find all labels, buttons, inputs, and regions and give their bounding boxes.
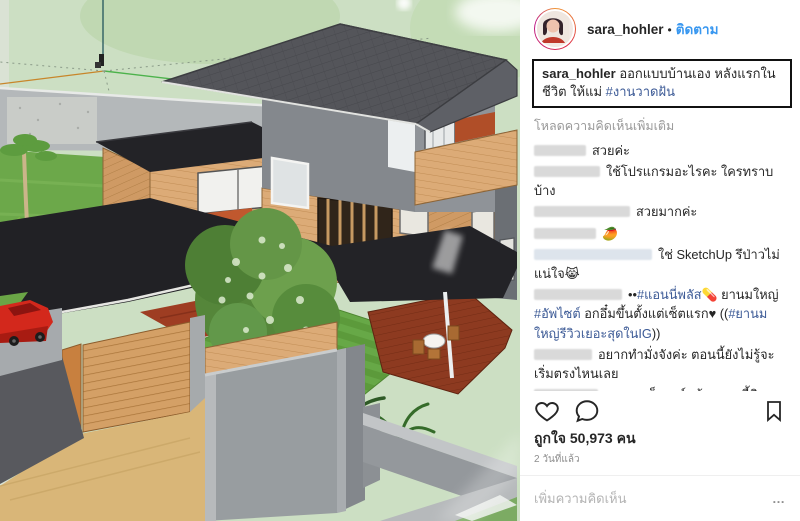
comment-row: สวยค่ะ [534,141,790,160]
comment-emoji: 💊 [702,287,718,302]
header-text: sara_hohler•ติดตาม [587,18,719,40]
timestamp: 2 วันที่แล้ว [520,452,800,475]
redacted-username[interactable] [534,289,622,300]
comment-row: 🥭 [534,224,790,243]
sketchup-scene-illustration [0,0,520,521]
add-comment-input[interactable]: เพิ่มความคิดเห็น [534,488,627,509]
comment-hashtag[interactable]: #แอนนี่พลัส [637,287,702,302]
comment-row: ••#แอนนี่พลัส💊 ยานมใหญ่ #อัพไซต์ อกอึ๋มข… [534,285,790,343]
like-heart-icon[interactable] [534,398,560,424]
caption-hashtag[interactable]: #งานวาดฝัน [606,84,675,99]
redacted-username[interactable] [534,166,600,177]
follow-button[interactable]: ติดตาม [676,22,719,37]
redacted-username[interactable] [534,228,596,239]
add-comment-row: เพิ่มความคิดเห็น … [520,476,800,521]
avatar-photo [535,9,575,49]
redacted-username[interactable] [534,389,598,391]
likes-count[interactable]: ถูกใจ 50,973 คน [520,427,800,452]
comments-list[interactable]: สวยค่ะ ใช้โปรแกรมอะไรคะ ใครทราบบ้าง สวยม… [520,141,800,391]
comment-text: •• [628,287,637,302]
comment-emoji: 🥭 [602,226,618,241]
comment-text: สวยค่ะ [592,143,630,158]
more-options-button[interactable]: … [772,491,786,506]
caption-username[interactable]: sara_hohler [542,66,616,81]
comment-row: อยากทำมั่งจังค่ะ ตอนนี้ยังไม่รู้จะเริ่มต… [534,345,790,383]
redacted-username[interactable] [534,249,652,260]
redacted-username[interactable] [534,145,586,156]
avatar[interactable] [534,8,576,50]
comment-row: สวยมากค่ะ [534,202,790,221]
post-detail-panel: sara_hohler•ติดตาม sara_hohler ออกแบบบ้า… [520,0,800,521]
caption-highlight-box: sara_hohler ออกแบบบ้านเอง หลังแรกในชีวิต… [532,59,792,108]
post-header: sara_hohler•ติดตาม [520,0,800,56]
header-separator: • [668,23,672,37]
bookmark-icon[interactable] [762,399,786,423]
load-more-comments[interactable]: โหลดความคิดเห็นเพิ่มเติม [520,114,800,141]
comment-text: อกอึ๋มขึ้นตั้งแต่เซ็ตแรก♥ (( [581,306,729,321]
comment-text: ยานมใหญ่ [718,287,779,302]
comment-row: ใช่ SketchUp รึป่าวไม่แน่ใจ😹 [534,245,790,283]
comment-row: ใช้โปรแกรมอะไรคะ ใครทราบบ้าง [534,162,790,200]
center-wall [205,350,337,521]
comment-hashtag[interactable]: #อัพไซต์ [534,306,581,321]
comment-emoji: 😹 [565,266,580,281]
comment-text: สวยมากค่ะ [636,204,697,219]
fence-pillar [337,344,365,513]
action-bar [520,391,800,427]
comment-icon[interactable] [574,398,600,424]
comment-text: )) [652,326,661,341]
post-image[interactable] [0,0,520,521]
username[interactable]: sara_hohler [587,22,664,37]
red-car [0,300,53,346]
redacted-username[interactable] [534,206,630,217]
redacted-username[interactable] [534,349,592,360]
